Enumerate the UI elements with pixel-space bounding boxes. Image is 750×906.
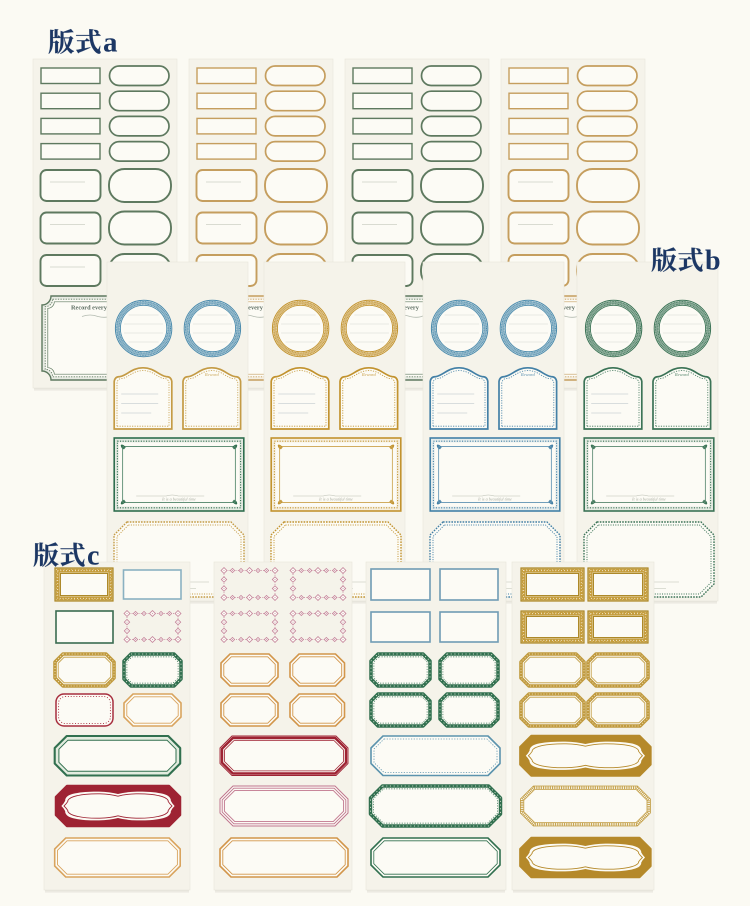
- svg-text:b: b: [705, 246, 721, 277]
- svg-text:Reward: Reward: [674, 372, 690, 377]
- svg-text:c: c: [87, 541, 99, 572]
- svg-text:a: a: [103, 27, 118, 59]
- svg-text:Reward: Reward: [361, 372, 377, 377]
- svg-text:Record every: Record every: [71, 305, 108, 312]
- svg-text:Reward: Reward: [520, 372, 536, 377]
- svg-text:Reward: Reward: [204, 372, 220, 377]
- svg-text:It is a beautiful time: It is a beautiful time: [631, 497, 666, 502]
- svg-text:It is a beautiful time: It is a beautiful time: [161, 497, 196, 502]
- svg-text:It is a beautiful time: It is a beautiful time: [477, 497, 512, 502]
- svg-text:It is a beautiful time: It is a beautiful time: [318, 497, 353, 502]
